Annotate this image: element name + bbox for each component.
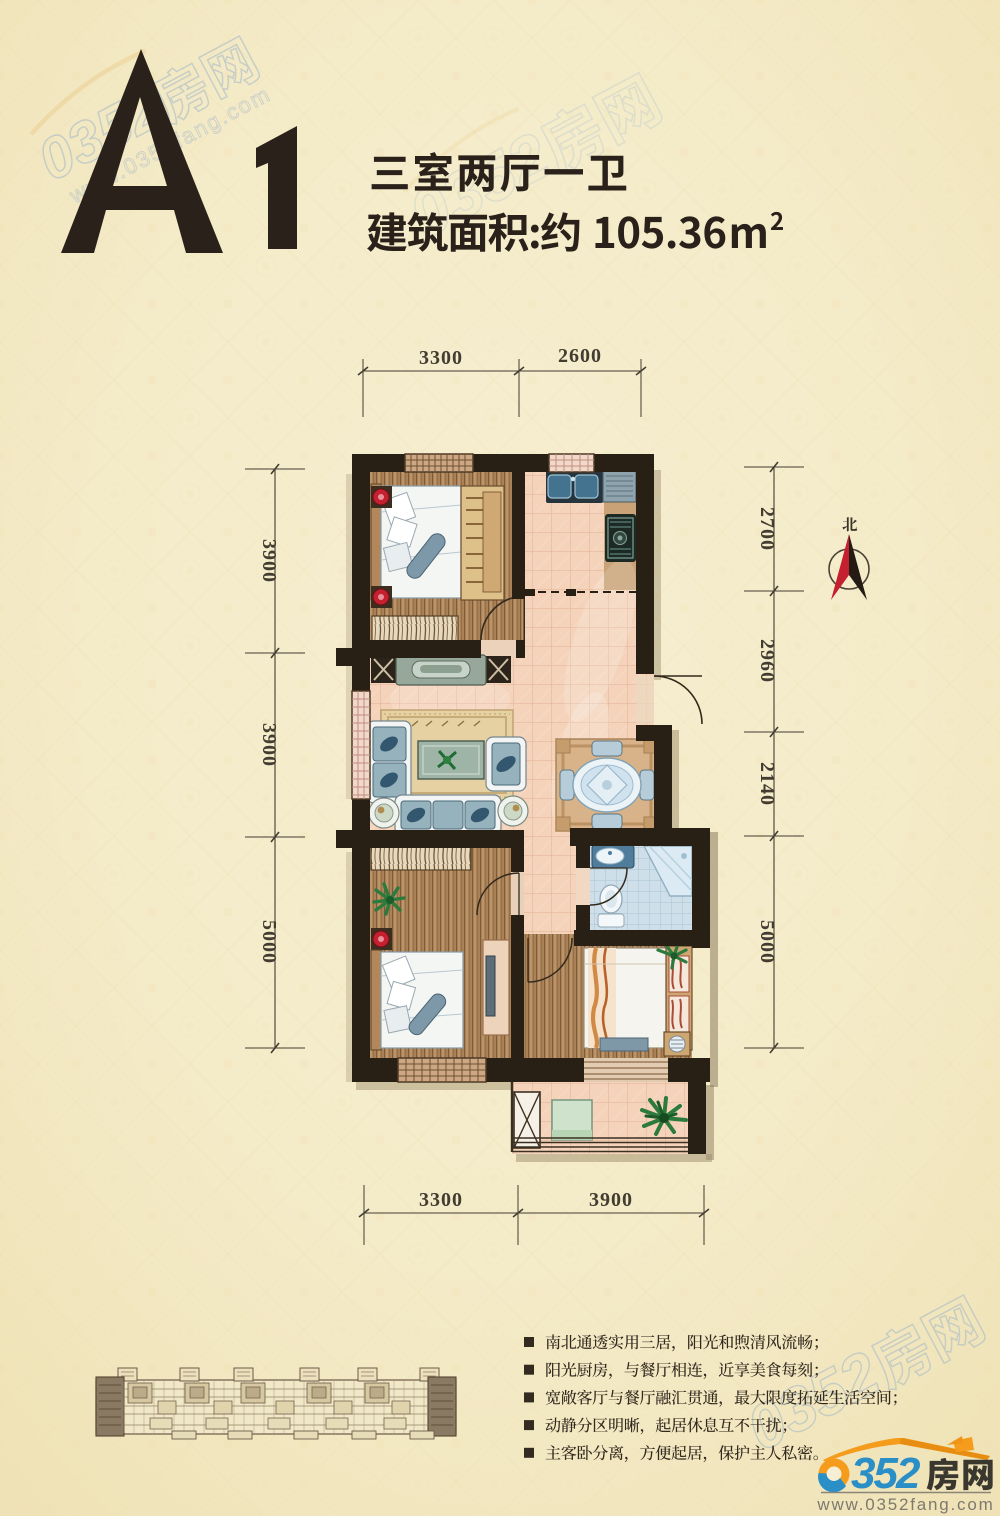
svg-text:2600: 2600 [558, 345, 602, 367]
svg-text:3300: 3300 [419, 347, 463, 369]
svg-text:3900: 3900 [258, 723, 280, 767]
svg-text:5000: 5000 [756, 920, 778, 964]
svg-text:352: 352 [851, 1449, 921, 1498]
svg-text:2960: 2960 [756, 639, 778, 683]
svg-text:3300: 3300 [419, 1189, 463, 1211]
svg-text:www.0352fang.com: www.0352fang.com [816, 1495, 994, 1514]
svg-text:3900: 3900 [258, 539, 280, 583]
svg-text:2700: 2700 [756, 507, 778, 551]
svg-text:3900: 3900 [589, 1189, 633, 1211]
svg-text:5000: 5000 [258, 920, 280, 964]
svg-text:2140: 2140 [756, 762, 778, 806]
